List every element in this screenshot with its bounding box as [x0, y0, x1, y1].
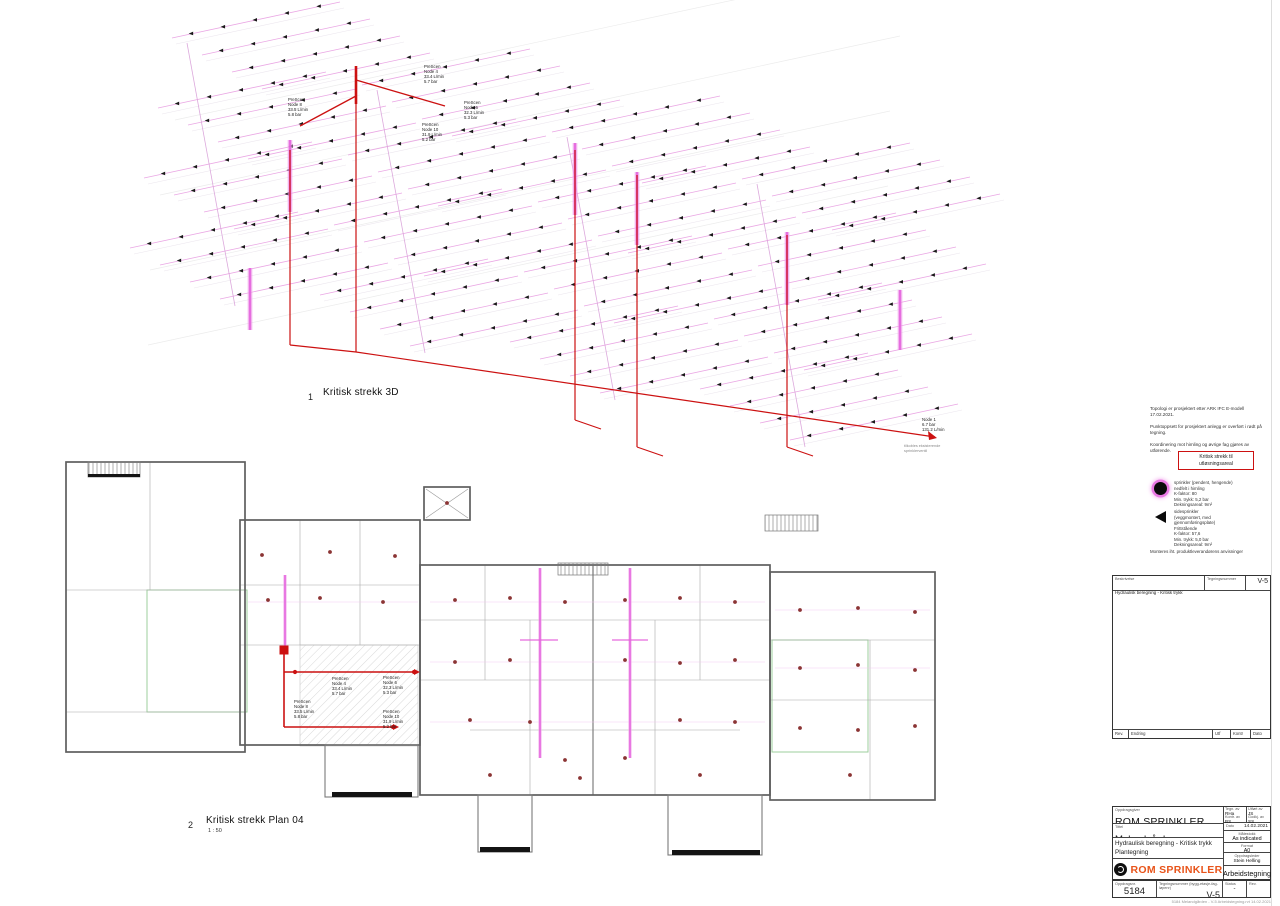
label3d-node6: 5.3 bar: [464, 115, 478, 120]
status-value: -: [1225, 886, 1244, 892]
title-block-numbers: Oppdragsnr. 5184 Tegningsnummer (bygg-et…: [1112, 880, 1271, 898]
drawing-canvas: PreScenNode 433.4 L/min5.7 barPreScenNod…: [0, 0, 1280, 906]
legend-title-line2: utløsningsareal: [1180, 461, 1252, 468]
rev-label: Rev.: [1249, 882, 1268, 886]
label3d-node1-note: sprinklerventil: [904, 449, 927, 453]
title-block: Oppdragsgiver ROM SPRINKLER Tittel Melan…: [1112, 806, 1271, 880]
labelplan-node6: 5.3 bar: [383, 690, 397, 695]
projno-value: 5184: [1115, 886, 1154, 897]
view-plan-04: [66, 462, 935, 855]
note-1: Topologi er prosjektert etter ARK IFC E-…: [1150, 406, 1264, 418]
drawing-desc-1: Hydraulisk beregning - Kritisk trykk: [1115, 839, 1221, 848]
desc-label: Beskrivelse: [1115, 577, 1202, 581]
bottom-dn-label: Tegningsnummer (bygg-etasje-fag-løpenr): [1159, 882, 1220, 890]
labelplan-node10: 5.2 bar: [383, 724, 397, 729]
logo-text: ROM SPRINKLER: [1131, 864, 1223, 876]
sheet-edge-line: [1271, 0, 1272, 906]
view2-title: Kritisk strekk Plan 04: [206, 815, 304, 826]
label3d-node8: 5.8 bar: [288, 112, 302, 117]
legend-title-box: Kritisk strekk til utløsningsareal: [1178, 451, 1254, 470]
drawing-sheet: { "colors": { "red": "#cc1111", "pink": …: [0, 0, 1280, 906]
company-name: ROM SPRINKLER: [1115, 816, 1205, 824]
rev-h-dato: Dato: [1251, 730, 1270, 738]
company-logo: ROM SPRINKLER: [1113, 859, 1223, 880]
dn-value: V-5: [1246, 576, 1270, 590]
drawing-desc-2: Plantegning: [1115, 848, 1221, 857]
revision-table-header: Rev. Endring Utf Kontr Dato: [1113, 729, 1270, 738]
sprinkler-sidewall-icon: [1146, 509, 1174, 548]
legend2-l6: Dekningsareal: 9m²: [1174, 542, 1234, 548]
drawing-status: Arbeidstegning: [1224, 866, 1270, 881]
company-label: Oppdragsgiver: [1115, 808, 1221, 812]
label3d-node10: 5.2 bar: [422, 137, 436, 142]
legend2-l2: (veggmontert, med gjennomføringsplate): [1174, 515, 1234, 526]
legend-footnote: Monteres iht. produktleverandørens anvis…: [1150, 549, 1250, 554]
rev-h-utf: Utf: [1213, 730, 1231, 738]
legend-item-pendent: sprinkler (pendent, hengende) nedfelt i …: [1146, 480, 1234, 508]
revision-box: Beskrivelse Hydraulisk beregning - Kriti…: [1112, 575, 1271, 739]
label3d-node1: 131.2 L/min: [922, 427, 945, 432]
desc-value: Hydraulisk beregning - Kritisk trykk: [1115, 590, 1183, 595]
legend-item-sidewall: sidesprinkler (veggmontert, med gjennomf…: [1146, 509, 1234, 548]
labelplan-node8: 5.8 bar: [294, 714, 308, 719]
rom-sprinkler-logo-icon: [1114, 863, 1127, 876]
rev-h-kontr: Kontr: [1231, 730, 1251, 738]
date-value: 14.02.2021: [1244, 824, 1268, 829]
lead-label: Oppdragsleder: [1226, 854, 1268, 858]
rev-h-endring: Endring: [1129, 730, 1213, 738]
label3d-node4: 5.7 bar: [424, 79, 438, 84]
file-path-footer: 5184 Melandgården - V-5 Arbeidstegning.r…: [990, 899, 1271, 904]
view1-number: 1: [308, 392, 313, 402]
lead-value: Stein Helling: [1234, 859, 1261, 864]
view-3d-kritisk-strekk: [130, 0, 1004, 456]
view1-title: Kritisk strekk 3D: [323, 387, 399, 398]
date-label: Dato: [1226, 824, 1234, 828]
legend1-l5: Dekningsareal: 9m²: [1174, 502, 1234, 508]
view2-scale: 1 : 50: [208, 828, 222, 834]
rev-h-rev: Rev.: [1113, 730, 1129, 738]
project-label: Tittel: [1115, 825, 1221, 829]
note-2: Punktoppsett for prosjektert anlegg er o…: [1150, 424, 1264, 436]
label3d-node1-note: tilkobles eksisterende: [904, 444, 940, 448]
dn-label: Tegningsnummer: [1207, 577, 1243, 581]
labelplan-node4: 5.7 bar: [332, 691, 346, 696]
legend1-l1: sprinkler (pendent, hengende): [1174, 480, 1234, 486]
view2-number: 2: [188, 820, 193, 830]
scale-value: As indicated: [1232, 836, 1261, 842]
sprinkler-pendent-icon: [1146, 480, 1174, 508]
